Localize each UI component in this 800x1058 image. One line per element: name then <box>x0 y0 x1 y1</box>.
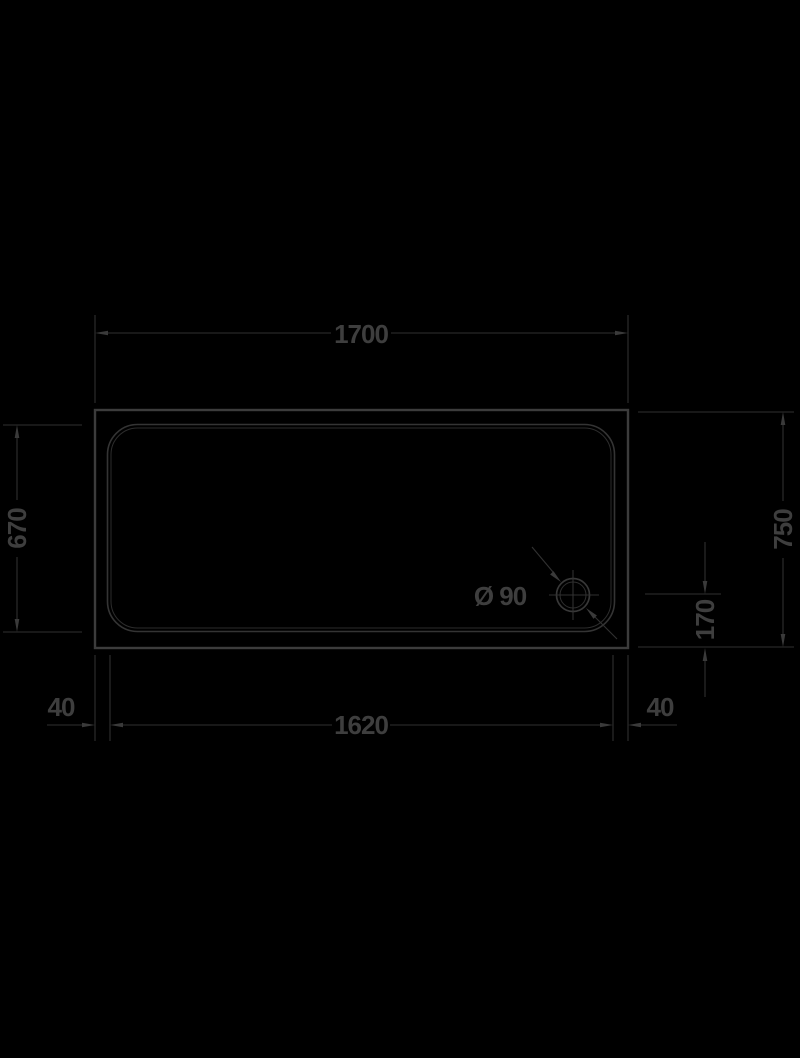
drain-leader-lower <box>594 616 617 639</box>
arrowhead-icon <box>628 723 641 728</box>
dim-1700-label: 1700 <box>334 319 388 349</box>
dim-750-label: 750 <box>768 509 798 550</box>
dim-40-left-label: 40 <box>48 692 75 722</box>
drain-leader-upper-arrowhead-icon <box>550 571 561 582</box>
arrowhead-icon <box>600 723 613 728</box>
tray-rim-outer-line <box>108 425 615 632</box>
arrowhead-icon <box>703 581 708 594</box>
drain-leader-upper <box>532 547 553 572</box>
tray-outer-edge <box>95 410 628 648</box>
arrowhead-icon <box>615 331 628 336</box>
arrowhead-icon <box>95 331 108 336</box>
dim-670-label: 670 <box>2 508 32 549</box>
arrowhead-icon <box>781 412 786 425</box>
dimension-bottom-row: 40 1620 40 <box>47 655 677 741</box>
dimension-drain-offset: 170 <box>645 542 721 697</box>
dim-1620-label: 1620 <box>334 710 388 740</box>
arrowhead-icon <box>110 723 123 728</box>
arrowhead-icon <box>15 619 20 632</box>
arrowhead-icon <box>15 425 20 438</box>
tray-outline <box>95 410 628 648</box>
dimension-overall-width: 1700 <box>95 315 628 403</box>
arrowhead-icon <box>781 634 786 647</box>
dim-170-label: 170 <box>690 599 720 640</box>
arrowhead-icon <box>703 648 708 661</box>
drawing-page: Ø 90 1700 670 <box>0 0 800 1058</box>
shower-tray-technical-drawing: Ø 90 1700 670 <box>0 0 800 1058</box>
arrowhead-icon <box>82 723 95 728</box>
dim-40-right-label: 40 <box>647 692 674 722</box>
drain-diameter-label: Ø 90 <box>474 581 527 611</box>
dimension-inner-depth: 670 <box>2 425 82 632</box>
tray-rim-inner-line <box>111 428 611 628</box>
